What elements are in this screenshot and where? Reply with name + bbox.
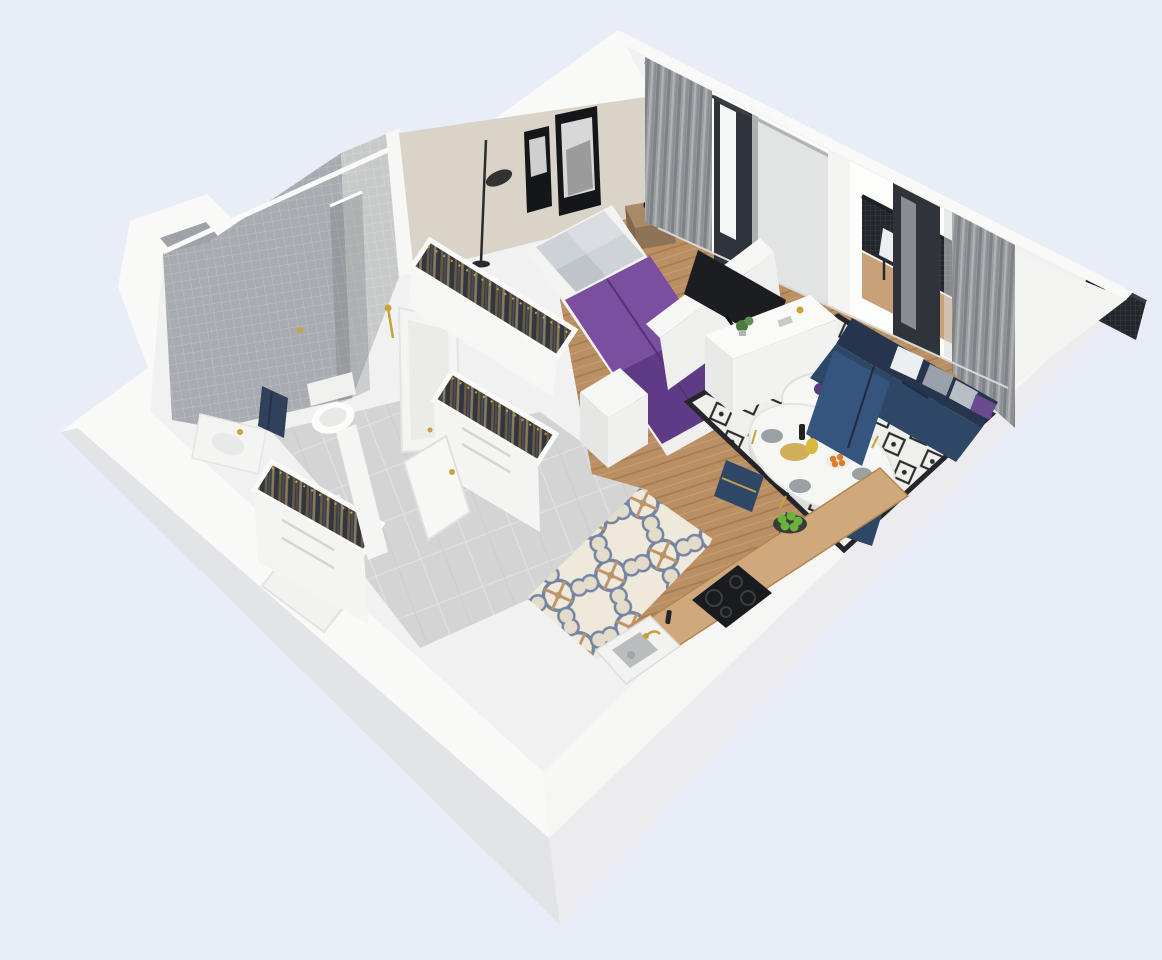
framed-artwork-small <box>524 126 552 213</box>
gold-faucet <box>237 429 243 435</box>
floorplan-render <box>0 0 1162 960</box>
bedroom-curtain-left <box>645 57 712 252</box>
pineapple <box>806 438 818 454</box>
window-pier <box>828 150 850 316</box>
wine-bottle <box>799 424 805 440</box>
balcony-door-frame <box>893 183 940 357</box>
framed-artwork-large <box>555 106 601 216</box>
hall-door-handle <box>449 469 455 475</box>
bathroom-wall-outer <box>163 243 216 428</box>
